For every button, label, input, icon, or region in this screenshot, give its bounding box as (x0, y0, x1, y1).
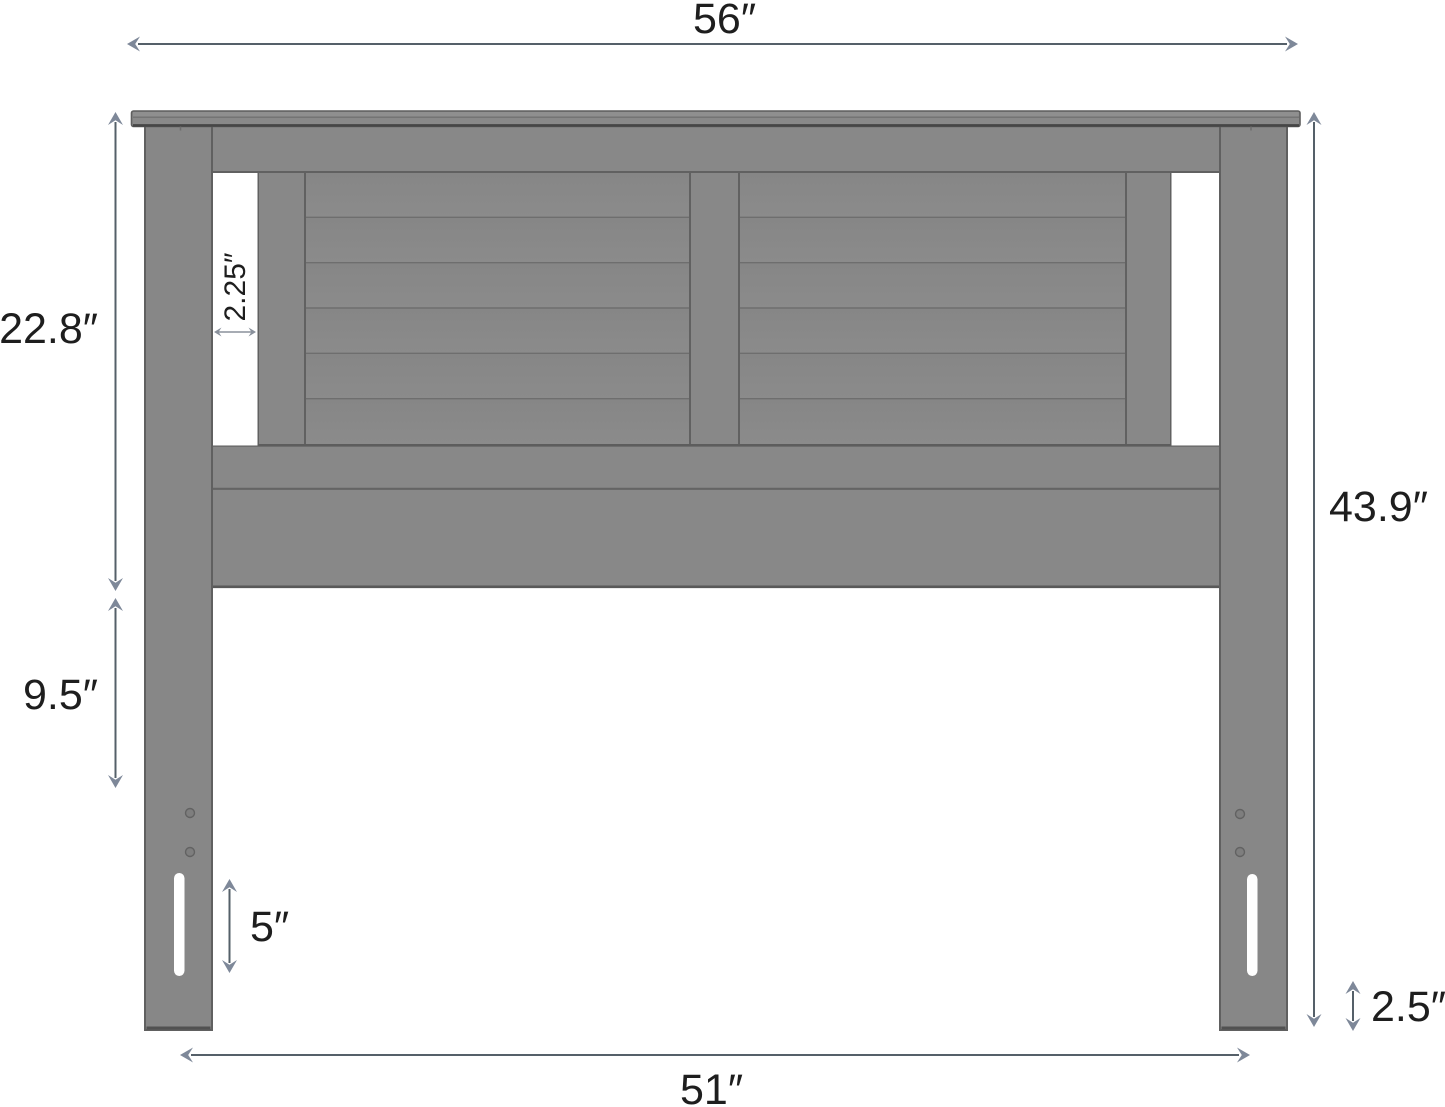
svg-text:43.9″: 43.9″ (1329, 483, 1428, 531)
svg-text:5″: 5″ (250, 903, 289, 951)
svg-text:56″: 56″ (693, 0, 756, 43)
svg-text:9.5″: 9.5″ (23, 671, 98, 719)
svg-text:22.8″: 22.8″ (0, 305, 98, 353)
svg-text:2.25″: 2.25″ (219, 252, 252, 321)
svg-text:2.5″: 2.5″ (1371, 983, 1445, 1031)
svg-text:51″: 51″ (680, 1066, 743, 1107)
